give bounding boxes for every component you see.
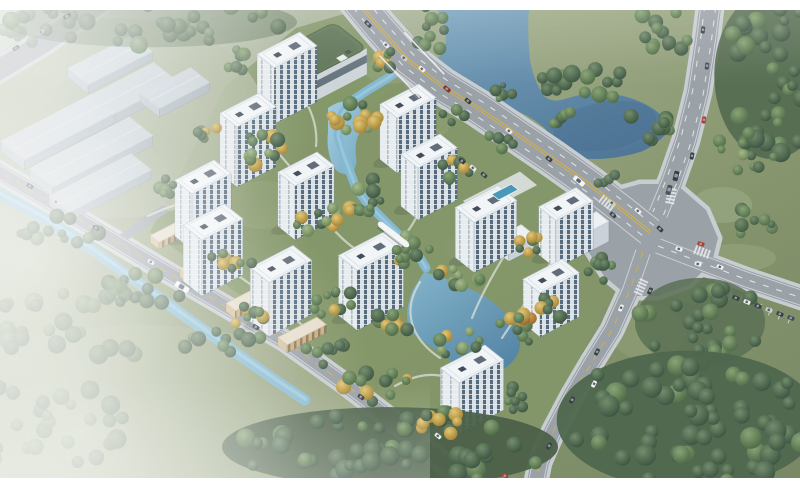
rendering-frame — [0, 0, 800, 485]
haze-layer — [0, 0, 800, 485]
masterplan-aerial-scene — [0, 0, 800, 485]
